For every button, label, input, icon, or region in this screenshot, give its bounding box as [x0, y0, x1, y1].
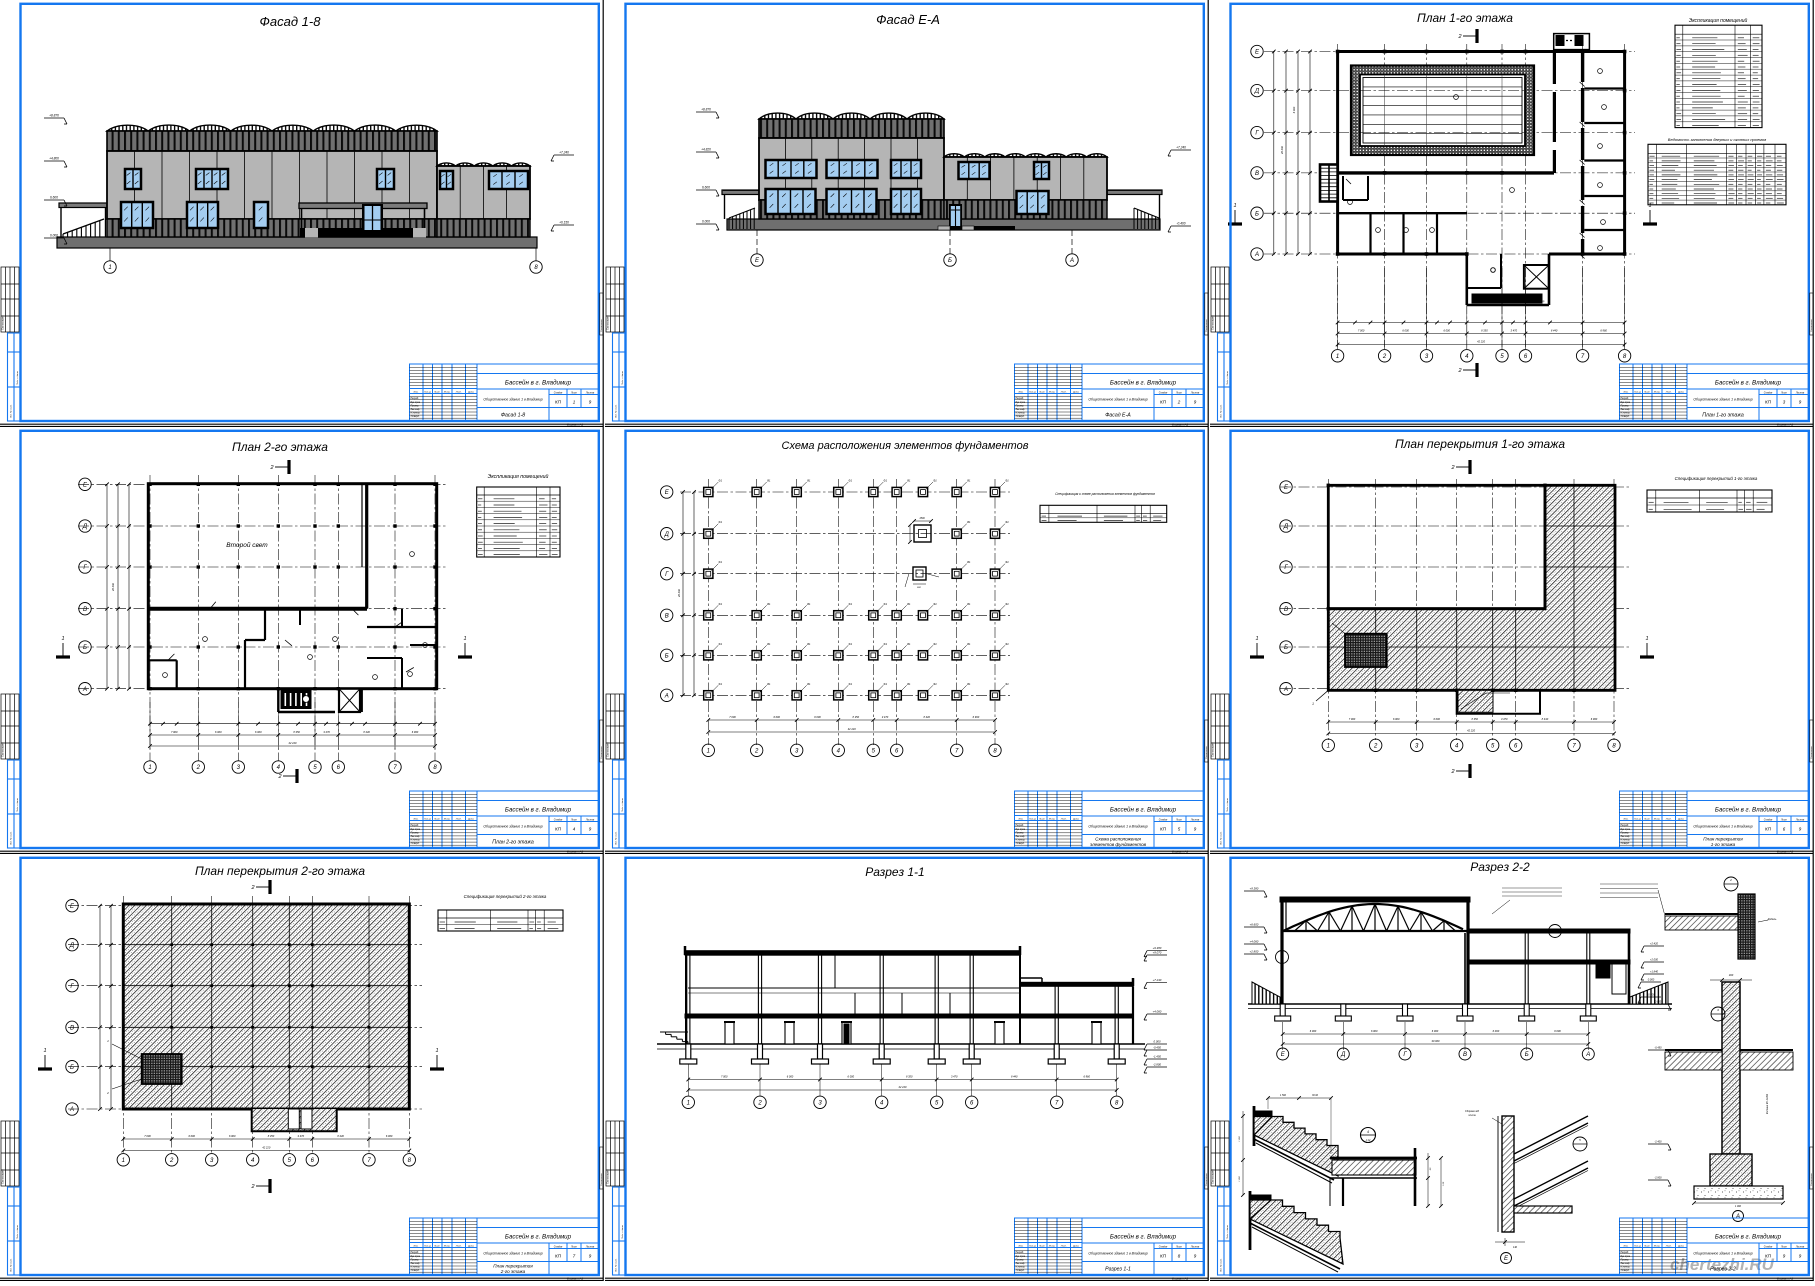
svg-text:Общественное здание 1 в Владим: Общественное здание 1 в Владимир: [1088, 1252, 1147, 1256]
svg-text:4: 4: [1367, 1130, 1369, 1134]
svg-text:Согласовано: Согласовано: [2, 742, 5, 757]
svg-text:9: 9: [589, 400, 592, 405]
svg-text:8: 8: [534, 265, 538, 271]
svg-text:Утверд.: Утверд.: [411, 1269, 420, 1272]
svg-text:Провер.: Провер.: [411, 1259, 420, 1261]
svg-text:Ф1: Ф1: [967, 642, 971, 646]
svg-text:140: 140: [1513, 1246, 1518, 1249]
svg-text:2: 2: [250, 1184, 254, 1190]
svg-text:9: 9: [589, 1254, 592, 1259]
svg-text:КП: КП: [1765, 1254, 1772, 1259]
svg-text:6 000: 6 000: [188, 1134, 195, 1138]
svg-text:№док.: №док.: [1654, 1244, 1661, 1247]
svg-text:Стадия: Стадия: [1159, 818, 1168, 821]
svg-text:2: 2: [1382, 354, 1387, 360]
svg-text:6 000: 6 000: [1554, 1029, 1561, 1033]
svg-text:Д: Д: [82, 524, 88, 530]
svg-text:400: 400: [1729, 973, 1734, 977]
svg-text:9: 9: [1799, 827, 1802, 832]
svg-text:Изм.: Изм.: [1019, 391, 1024, 393]
svg-text:Инв. № подл.: Инв. № подл.: [10, 1258, 13, 1272]
svg-text:Изм.: Изм.: [414, 818, 419, 820]
svg-text:6 960: 6 960: [1083, 1075, 1090, 1079]
svg-text:Дата: Дата: [1072, 1245, 1080, 1247]
svg-text:А: А: [1735, 1214, 1740, 1220]
svg-text:Н.контр.: Н.контр.: [1621, 1267, 1631, 1269]
svg-text:2: 2: [1373, 743, 1378, 749]
svg-text:+8.870: +8.870: [49, 114, 59, 118]
svg-text:План 2-го этажа: План 2-го этажа: [232, 440, 328, 454]
svg-text:1: 1: [122, 1158, 125, 1164]
svg-text:30 00: 30 00: [1312, 1094, 1319, 1097]
svg-text:+4.800: +4.800: [49, 157, 59, 161]
svg-text:6.600: 6.600: [702, 186, 710, 190]
svg-text:42 220: 42 220: [289, 741, 297, 745]
svg-text:6 960: 6 960: [1600, 329, 1607, 333]
svg-text:8: 8: [993, 748, 997, 754]
svg-text:Е: Е: [1281, 1052, 1286, 1058]
svg-text:Стадия: Стадия: [1159, 391, 1168, 394]
svg-text:Провер.: Провер.: [1016, 1259, 1025, 1261]
svg-text:8 350: 8 350: [853, 715, 860, 719]
svg-text:2: 2: [106, 1091, 109, 1095]
svg-text:Рук.прое: Рук.прое: [1016, 829, 1026, 831]
svg-text:5: 5: [288, 1158, 292, 1164]
svg-text:3 470: 3 470: [1501, 717, 1508, 721]
svg-text:Изм.: Изм.: [414, 391, 419, 393]
svg-text:2-го этажа: 2-го этажа: [500, 1269, 526, 1274]
svg-text:Колонна КС 2х400: Колонна КС 2х400: [1766, 1093, 1769, 1114]
svg-text:Утверд.: Утверд.: [411, 415, 420, 418]
svg-text:КП: КП: [1160, 400, 1167, 405]
svg-text:Ф1: Ф1: [849, 642, 853, 646]
svg-text:Д: Д: [1254, 89, 1260, 95]
svg-text:Ф1: Ф1: [807, 642, 811, 646]
svg-text:А: А: [664, 693, 669, 699]
svg-text:Рук.прое: Рук.прое: [1621, 829, 1631, 831]
svg-text:Утверд.: Утверд.: [1621, 415, 1630, 418]
svg-text:6 960: 6 960: [386, 1134, 393, 1138]
svg-text:Фасад Е-А: Фасад Е-А: [876, 12, 940, 27]
svg-text:Разраб.: Разраб.: [1621, 825, 1630, 827]
svg-text:В: В: [83, 607, 87, 613]
svg-text:Ф1: Ф1: [967, 560, 971, 564]
svg-text:Фасад Е-А: Фасад Е-А: [1105, 413, 1131, 419]
svg-text:Ф1: Ф1: [933, 479, 937, 483]
svg-text:Формат А3: Формат А3: [1172, 849, 1189, 853]
svg-text:Согласовано: Согласовано: [607, 1169, 610, 1184]
svg-text:Подп. и дата: Подп. и дата: [1226, 1225, 1229, 1239]
svg-text:Ф1: Ф1: [933, 602, 937, 606]
svg-text:8: 8: [408, 1158, 412, 1164]
svg-text:8 440: 8 440: [363, 730, 370, 734]
svg-text:8 350: 8 350: [1471, 717, 1478, 721]
svg-text:В: В: [1284, 607, 1288, 613]
svg-text:Подп. и дата: Подп. и дата: [621, 371, 624, 385]
svg-text:8 350: 8 350: [293, 730, 300, 734]
svg-text:Утверд.: Утверд.: [411, 842, 420, 845]
svg-text:Подп.: Подп.: [1666, 1244, 1672, 1247]
svg-text:Е: Е: [1504, 1256, 1509, 1262]
svg-text:2: 2: [1177, 400, 1181, 405]
svg-text:5: 5: [935, 1100, 939, 1106]
svg-text:+7.240: +7.240: [559, 151, 569, 155]
svg-text:+9.380: +9.380: [1250, 887, 1259, 891]
svg-text:План 1-го этажа: План 1-го этажа: [1417, 11, 1513, 25]
svg-text:Кол.уч: Кол.уч: [424, 818, 431, 820]
svg-text:1: 1: [107, 1039, 109, 1043]
svg-text:Ф1: Ф1: [884, 682, 888, 686]
svg-text:Утверд.: Утверд.: [1621, 842, 1630, 845]
svg-text:3: 3: [795, 748, 799, 754]
svg-text:План перекрытия: План перекрытия: [1703, 837, 1743, 842]
svg-text:Разрез 1-1: Разрез 1-1: [865, 865, 924, 879]
svg-text:3: 3: [210, 1158, 214, 1164]
svg-text:7 000: 7 000: [729, 715, 736, 719]
svg-text:Бассейн в г. Владимир: Бассейн в г. Владимир: [1110, 807, 1177, 814]
svg-text:Ф1: Ф1: [719, 479, 723, 483]
svg-text:Н.контр.: Н.контр.: [1016, 413, 1026, 415]
svg-text:Формат А3: Формат А3: [1777, 422, 1794, 426]
svg-text:42 220: 42 220: [262, 1146, 270, 1150]
svg-text:Общественное здание 1 в Владим: Общественное здание 1 в Владимир: [1693, 1252, 1752, 1256]
svg-text:1: 1: [707, 748, 710, 754]
svg-text:8 440: 8 440: [337, 1134, 344, 1138]
svg-text:6 960: 6 960: [412, 730, 419, 734]
svg-text:Рук.прое: Рук.прое: [1621, 402, 1631, 404]
svg-text:Разраб.: Разраб.: [411, 398, 420, 400]
svg-text:+2.800: +2.800: [1250, 950, 1259, 954]
svg-text:Разраб.: Разраб.: [411, 1252, 420, 1254]
svg-text:Изм.: Изм.: [414, 1245, 419, 1247]
svg-text:Подп. и дата: Подп. и дата: [16, 798, 19, 812]
svg-text:Бассейн в г. Владимир: Бассейн в г. Владимир: [1715, 380, 1782, 387]
svg-text:Формат А3: Формат А3: [567, 849, 584, 853]
svg-text:Спецификация к схеме расположе: Спецификация к схеме расположения элемен…: [1055, 492, 1155, 496]
svg-text:8 440: 8 440: [1011, 1075, 1018, 1079]
svg-text:Ф1: Ф1: [719, 642, 723, 646]
svg-text:+6.600: +6.600: [1250, 923, 1259, 927]
svg-text:6: 6: [1783, 827, 1786, 832]
svg-text:Бассейн в г. Владимир: Бассейн в г. Владимир: [505, 1234, 572, 1241]
svg-text:2: 2: [1457, 368, 1461, 374]
svg-text:Стадия: Стадия: [1764, 1245, 1773, 1248]
svg-text:элементов фундаментов: элементов фундаментов: [1090, 842, 1147, 847]
svg-text:Формат А3: Формат А3: [567, 422, 584, 426]
svg-text:2: 2: [1450, 769, 1454, 775]
svg-text:1:12: 1:12: [1366, 1139, 1371, 1142]
svg-text:Дата: Дата: [1677, 818, 1685, 820]
svg-text:Дата: Дата: [1072, 818, 1080, 820]
svg-text:Провер.: Провер.: [411, 832, 420, 834]
svg-text:3 470: 3 470: [323, 730, 330, 734]
svg-text:9: 9: [1194, 827, 1197, 832]
svg-text:Н.контр.: Н.контр.: [1016, 1267, 1026, 1269]
svg-text:тамбур: тамбур: [1536, 300, 1545, 303]
svg-text:5: 5: [1579, 1138, 1581, 1142]
svg-text:Согласовано: Согласовано: [1206, 745, 1208, 759]
svg-text:1 650: 1 650: [1239, 1135, 1241, 1141]
svg-text:2: 2: [1450, 465, 1454, 471]
svg-text:7 000: 7 000: [1358, 329, 1365, 333]
svg-text:Провер.: Провер.: [411, 405, 420, 407]
svg-text:Ф1: Ф1: [884, 479, 888, 483]
svg-text:+2.420: +2.420: [1650, 942, 1659, 946]
svg-text:Утверд.: Утверд.: [1621, 1269, 1630, 1272]
svg-text:Утверд.: Утверд.: [1016, 842, 1025, 845]
svg-text:1 500: 1 500: [1280, 1094, 1287, 1097]
svg-text:0.000: 0.000: [1648, 978, 1655, 982]
svg-text:6 000: 6 000: [1292, 106, 1296, 113]
svg-text:Д: Д: [664, 532, 670, 538]
svg-text:План перекрытия 1-го этажа: План перекрытия 1-го этажа: [1395, 437, 1565, 451]
svg-text:8 440: 8 440: [1551, 329, 1558, 333]
svg-text:Рук.прое: Рук.прое: [411, 829, 421, 831]
svg-text:1: 1: [463, 636, 466, 642]
svg-text:Ф1: Ф1: [849, 602, 853, 606]
svg-text:7 000: 7 000: [171, 730, 178, 734]
svg-text:6: 6: [895, 748, 899, 754]
svg-text:-0.450: -0.450: [1153, 1046, 1161, 1050]
svg-text:Бассейн в г. Владимир: Бассейн в г. Владимир: [1715, 807, 1782, 814]
svg-text:Н.контр.: Н.контр.: [1621, 413, 1631, 415]
svg-text:2: 2: [169, 1158, 174, 1164]
svg-text:6 000: 6 000: [1443, 329, 1450, 333]
svg-text:Второй свет: Второй свет: [226, 541, 268, 549]
svg-text:1: 1: [148, 765, 151, 771]
svg-text:Согласовано: Согласовано: [1212, 1169, 1215, 1184]
svg-text:Ф1: Ф1: [1005, 560, 1009, 564]
svg-text:Лист: Лист: [1038, 391, 1045, 393]
svg-text:6 000: 6 000: [215, 730, 222, 734]
svg-text:Подп.: Подп.: [1061, 1244, 1067, 1247]
svg-text:Спецификация перекрытий 1-го э: Спецификация перекрытий 1-го этажа: [1675, 476, 1758, 481]
svg-text:Подп.: Подп.: [456, 817, 462, 820]
svg-text:План перекрытия 2-го этажа: План перекрытия 2-го этажа: [195, 864, 365, 878]
svg-text:3 470: 3 470: [1511, 329, 1518, 333]
svg-text:4: 4: [880, 1100, 884, 1106]
svg-text:Лист: Лист: [1175, 819, 1182, 821]
svg-text:Формат А3: Формат А3: [567, 1276, 584, 1280]
svg-text:Г: Г: [1255, 131, 1259, 137]
svg-text:Лист: Лист: [1643, 1245, 1650, 1247]
svg-text:Рук.прое: Рук.прое: [1621, 1256, 1631, 1258]
svg-text:Ведомость заполнения дверных и: Ведомость заполнения дверных и оконных п…: [1668, 137, 1766, 142]
svg-text:КП: КП: [1765, 400, 1772, 405]
svg-text:Листов: Листов: [585, 392, 595, 394]
svg-text:6 000: 6 000: [1371, 1029, 1378, 1033]
svg-text:Б: Б: [948, 258, 952, 264]
svg-text:Г: Г: [1403, 1052, 1407, 1058]
svg-text:Согласовано: Согласовано: [1811, 745, 1813, 759]
svg-text:Ф1: Ф1: [1005, 642, 1009, 646]
svg-text:+7.240: +7.240: [1153, 978, 1162, 982]
svg-text:плита: плита: [1468, 1114, 1476, 1117]
svg-text:Дата: Дата: [467, 391, 475, 393]
svg-text:Спецификация перекрытий 2-го э: Спецификация перекрытий 2-го этажа: [464, 894, 547, 899]
svg-text:Лист: Лист: [570, 1246, 577, 1248]
svg-text:Подп. и дата: Подп. и дата: [16, 371, 19, 385]
svg-text:6 000: 6 000: [1433, 717, 1440, 721]
svg-text:Ф1: Ф1: [967, 682, 971, 686]
svg-text:КП: КП: [1160, 1254, 1167, 1259]
svg-text:Ф1: Ф1: [719, 602, 723, 606]
svg-text:-2.400: -2.400: [1654, 1141, 1662, 1144]
svg-text:Ф1: Ф1: [907, 479, 911, 483]
svg-text:1: 1: [1645, 636, 1648, 642]
svg-text:6.600: 6.600: [50, 196, 58, 200]
svg-text:1: 1: [1233, 203, 1236, 209]
svg-text:1: 1: [435, 1048, 438, 1054]
svg-text:9: 9: [589, 827, 592, 832]
svg-text:Листов: Листов: [585, 819, 595, 821]
svg-text:Подп.: Подп.: [456, 390, 462, 393]
svg-text:+1.840: +1.840: [1650, 970, 1659, 974]
svg-text:№док.: №док.: [444, 817, 451, 820]
svg-text:№док.: №док.: [1049, 817, 1056, 820]
svg-text:1: 1: [1648, 203, 1651, 209]
svg-text:Подп. и дата: Подп. и дата: [621, 1225, 624, 1239]
svg-text:Е: Е: [1284, 485, 1289, 491]
svg-text:Листов: Листов: [1190, 819, 1200, 821]
svg-text:Зав.каф.: Зав.каф.: [1016, 408, 1026, 411]
svg-text:План 1-го этажа: План 1-го этажа: [1702, 413, 1744, 419]
svg-text:Согласовано: Согласовано: [2, 1169, 5, 1184]
svg-text:5: 5: [1500, 354, 1504, 360]
svg-text:3: 3: [1717, 1008, 1719, 1012]
svg-text:7: 7: [955, 748, 959, 754]
svg-text:Стадия: Стадия: [554, 391, 563, 394]
svg-text:Бассейн в г. Владимир: Бассейн в г. Владимир: [505, 380, 572, 387]
svg-text:Е: Е: [755, 258, 760, 264]
svg-text:Б: Б: [1284, 645, 1288, 651]
svg-text:Зав.каф.: Зав.каф.: [1621, 1262, 1631, 1265]
svg-text:Разраб.: Разраб.: [1016, 825, 1025, 827]
svg-text:Лист: Лист: [1780, 1246, 1787, 1248]
svg-text:КП: КП: [1160, 827, 1167, 832]
svg-text:Разраб.: Разраб.: [1016, 398, 1025, 400]
svg-text:Ф1: Ф1: [849, 479, 853, 483]
svg-text:6: 6: [1524, 354, 1528, 360]
svg-text:6 960: 6 960: [973, 715, 980, 719]
svg-text:А: А: [1585, 1052, 1590, 1058]
svg-text:Стадия: Стадия: [1764, 818, 1773, 821]
svg-text:-2.800: -2.800: [1153, 1063, 1161, 1067]
svg-text:Ф1: Ф1: [767, 682, 771, 686]
svg-text:Общественное здание 1 в Владим: Общественное здание 1 в Владимир: [1088, 398, 1147, 402]
svg-text:1: 1: [687, 1100, 690, 1106]
svg-text:Зав.каф.: Зав.каф.: [1621, 408, 1631, 411]
svg-text:Зав.каф.: Зав.каф.: [1016, 835, 1026, 838]
svg-text:Изм.: Изм.: [1019, 1245, 1024, 1247]
svg-text:Согласовано: Согласовано: [601, 318, 603, 332]
svg-text:8: 8: [1623, 354, 1627, 360]
svg-text:-2.800: -2.800: [1654, 1177, 1662, 1180]
svg-text:+4.820: +4.820: [701, 148, 711, 152]
svg-text:Лист: Лист: [433, 818, 440, 820]
svg-text:Утверд.: Утверд.: [1016, 415, 1025, 418]
svg-text:Инв. № подл.: Инв. № подл.: [615, 1258, 618, 1272]
svg-text:8: 8: [1612, 743, 1616, 749]
svg-text:1: 1: [43, 1048, 46, 1054]
svg-text:Согласовано: Согласовано: [601, 745, 603, 759]
svg-text:-0.450: -0.450: [1654, 1047, 1662, 1050]
svg-text:Б: Б: [83, 645, 87, 651]
svg-text:Г: Г: [665, 572, 669, 578]
svg-text:50: 50: [1430, 1167, 1432, 1170]
svg-text:9: 9: [1194, 1254, 1197, 1259]
svg-text:Ф1: Ф1: [1005, 682, 1009, 686]
svg-text:Ф1: Ф1: [767, 602, 771, 606]
svg-text:Лист: Лист: [1175, 1246, 1182, 1248]
svg-text:3: 3: [237, 765, 241, 771]
svg-text:В: В: [1463, 1052, 1467, 1058]
svg-text:0.000: 0.000: [1154, 1040, 1161, 1044]
svg-text:№док.: №док.: [444, 390, 451, 393]
svg-text:№док.: №док.: [1049, 390, 1056, 393]
svg-text:Согласовано: Согласовано: [1206, 1172, 1208, 1186]
svg-text:Лист: Лист: [1643, 818, 1650, 820]
svg-text:Ф1: Ф1: [807, 682, 811, 686]
svg-text:Ф1: Ф1: [807, 479, 811, 483]
svg-text:8 440: 8 440: [923, 715, 930, 719]
svg-text:2: 2: [1729, 878, 1732, 882]
svg-text:В: В: [665, 613, 669, 619]
svg-text:В: В: [1255, 171, 1259, 177]
svg-text:Г: Г: [70, 984, 74, 990]
svg-text:Зав.каф.: Зав.каф.: [411, 408, 421, 411]
svg-text:+4.060: +4.060: [1250, 940, 1259, 944]
svg-text:3 470: 3 470: [882, 715, 889, 719]
svg-text:6: 6: [311, 1158, 315, 1164]
svg-text:6 000: 6 000: [787, 1075, 794, 1079]
svg-text:Кол.уч: Кол.уч: [1029, 818, 1036, 820]
svg-text:3 470: 3 470: [951, 1075, 958, 1079]
svg-text:Согласовано: Согласовано: [607, 742, 610, 757]
svg-text:Листов: Листов: [1190, 392, 1200, 394]
svg-text:6 000: 6 000: [848, 1075, 855, 1079]
svg-text:Ф1: Ф1: [719, 560, 723, 564]
svg-text:Д: Д: [1340, 1052, 1346, 1058]
svg-text:КП: КП: [555, 400, 562, 405]
svg-text:6 000: 6 000: [1402, 329, 1409, 333]
svg-text:В: В: [70, 1025, 74, 1031]
svg-text:5: 5: [1178, 827, 1181, 832]
svg-text:Дата: Дата: [1677, 391, 1685, 393]
svg-text:А: А: [1254, 252, 1259, 258]
svg-text:Согласовано: Согласовано: [1811, 318, 1813, 332]
svg-text:А: А: [1283, 687, 1288, 693]
svg-text:Бассейн в г. Владимир: Бассейн в г. Владимир: [1715, 1234, 1782, 1241]
svg-text:7: 7: [573, 1254, 576, 1259]
svg-text:Общественное здание 1 в Владим: Общественное здание 1 в Владимир: [483, 398, 542, 402]
svg-text:1 000: 1 000: [1735, 1205, 1742, 1208]
svg-text:Инв. № подл.: Инв. № подл.: [615, 831, 618, 845]
svg-text:Общественное здание 1 в Владим: Общественное здание 1 в Владимир: [483, 825, 542, 829]
svg-text:6 000: 6 000: [255, 730, 262, 734]
svg-text:Лист: Лист: [433, 391, 440, 393]
svg-text:Листов: Листов: [1190, 1246, 1200, 1248]
svg-text:-0.400: -0.400: [1647, 993, 1655, 997]
svg-text:Кол.уч: Кол.уч: [424, 1245, 431, 1247]
svg-text:А: А: [69, 1107, 74, 1113]
svg-text:Зав.каф.: Зав.каф.: [411, 1262, 421, 1265]
svg-text:1: 1: [108, 265, 111, 271]
svg-text:Н.контр.: Н.контр.: [411, 413, 421, 415]
svg-text:1: 1: [1255, 636, 1258, 642]
svg-text:3: 3: [1783, 400, 1786, 405]
svg-text:Ф1: Ф1: [719, 682, 723, 686]
